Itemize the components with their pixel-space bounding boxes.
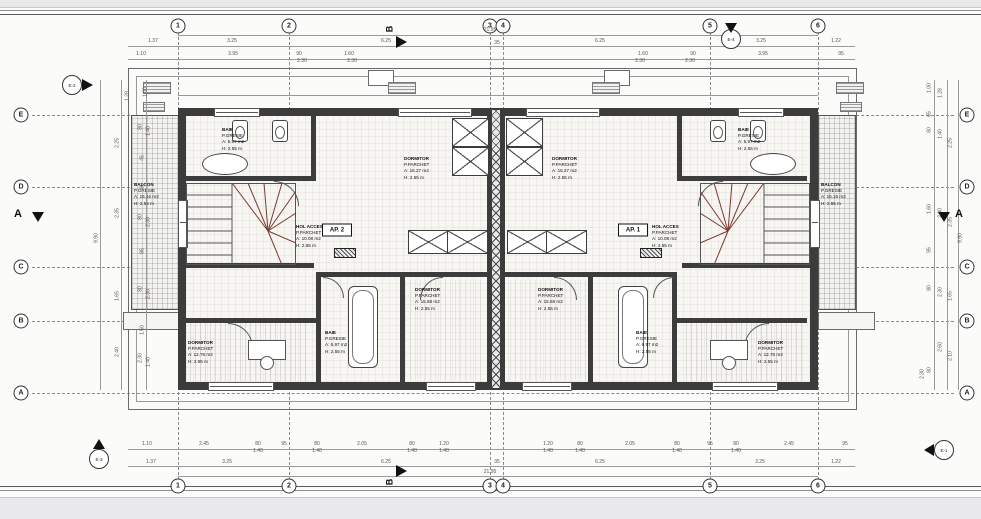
dimension-label: 2.05 xyxy=(625,442,635,447)
grid-bubble-top: 1 xyxy=(171,19,186,34)
partition-bedroom-left xyxy=(186,318,321,323)
room-height: H: 2.55 m xyxy=(821,201,846,207)
dim-rail xyxy=(128,449,855,450)
dimension-label: 2.10 xyxy=(949,351,954,361)
entry-canopy-right xyxy=(818,312,875,330)
room-area: A: 15.16 m2 xyxy=(821,194,846,200)
toilet-left-2 xyxy=(272,120,288,142)
note-tag xyxy=(836,82,864,94)
room-area: A: 5.97 m2 xyxy=(738,139,760,145)
window-bottom-center-left xyxy=(426,382,476,391)
dimension-label: 2.35 xyxy=(116,208,121,218)
room-area: A: 12.76 m2 xyxy=(758,352,783,358)
dimension-label: 80 xyxy=(928,367,933,373)
note-tag xyxy=(592,82,620,94)
dimension-label: 2.30 xyxy=(635,59,645,64)
grid-bubble-right: A xyxy=(960,386,975,401)
grid-bubble-left: C xyxy=(14,260,29,275)
dimension-label: 2.45 xyxy=(199,442,209,447)
room-label: BAIE P.GRESIE A: 6.97 m2 H: 2.55 m xyxy=(325,330,347,355)
room-label: BALCON P.GRESIE A: 15.16 m2 H: 2.55 m xyxy=(821,182,846,207)
dimension-label: 95 xyxy=(928,247,933,253)
room-area: A: 5.97 m2 xyxy=(222,139,244,145)
window-top-right-unit xyxy=(526,108,600,117)
dimension-label: 1.65 xyxy=(949,291,954,301)
room-height: H: 2.55 m xyxy=(188,359,213,365)
room-height: H: 2.55 m xyxy=(552,175,577,181)
dim-rail xyxy=(100,80,101,390)
room-height: H: 2.55 m xyxy=(538,306,563,312)
dim-rail xyxy=(178,476,818,477)
closet-x-top-left1 xyxy=(452,118,489,147)
room-label: DORMITOR P.PARCHET A: 12.76 m2 H: 2.55 m xyxy=(188,340,213,365)
parapet-line xyxy=(178,95,818,96)
tub-oval-left xyxy=(202,153,248,175)
dimension-label: 80 xyxy=(139,124,144,130)
dimension-label: 80 xyxy=(577,442,583,447)
dimension-label: 2.05 xyxy=(357,442,367,447)
room-label: BAIE P.GRESIE A: 6.97 m2 H: 2.55 m xyxy=(636,330,658,355)
dimension-label: 1.40 xyxy=(543,449,553,454)
room-area: A: 10.08 m2 xyxy=(652,236,679,242)
dimension-label: 95 xyxy=(281,442,287,447)
dimension-label: 95 xyxy=(141,248,146,254)
grid-bubble-bottom: 5 xyxy=(703,479,718,494)
apartment-tag: AP. 2 xyxy=(322,224,352,237)
dimension-label: 1.40 xyxy=(312,449,322,454)
room-height: H: 2.55 m xyxy=(415,306,440,312)
room-label: DORMITOR P.PARCHET A: 16.27 m2 H: 2.55 m xyxy=(404,156,429,181)
dimension-label: 2.30 xyxy=(147,289,152,299)
dimension-label: 9.90 xyxy=(959,233,964,243)
dim-rail xyxy=(934,80,935,390)
dimension-label: 1.00 xyxy=(928,83,933,93)
balcony-door-right xyxy=(810,200,820,248)
window-top-left-unit xyxy=(398,108,472,117)
room-label: HOL ACCES P.PARCHET A: 10.08 m2 H: 2.55 … xyxy=(652,224,679,249)
dimension-label: 1.40 xyxy=(731,449,741,454)
tub-oval-right xyxy=(750,153,796,175)
dimension-label: 1.60 xyxy=(638,52,648,57)
grid-bubble-right: D xyxy=(960,180,975,195)
room-label: DORMITOR P.PARCHET A: 15.68 m2 H: 2.55 m xyxy=(538,287,563,312)
level-marker-left xyxy=(334,248,356,258)
room-label: DORMITOR P.PARCHET A: 16.27 m2 H: 2.55 m xyxy=(552,156,577,181)
partition-bath-side-right xyxy=(677,113,682,181)
dimension-label: 3.25 xyxy=(222,460,232,465)
dimension-label: 2.40 xyxy=(116,347,121,357)
entry-canopy-left xyxy=(123,312,180,330)
dimension-label: 2.25 xyxy=(949,138,954,148)
dimension-label: 1.50 xyxy=(141,325,146,335)
party-wall-right-leaf xyxy=(500,108,505,390)
chair-left xyxy=(260,356,274,370)
elevation-mark-arrow xyxy=(924,444,934,456)
grid-bubble-right: C xyxy=(960,260,975,275)
closet-x-mid-left1 xyxy=(408,230,449,254)
room-area: A: 16.27 m2 xyxy=(404,168,429,174)
dimension-label: 80 xyxy=(139,214,144,220)
balcony-right xyxy=(818,115,856,310)
grid-bubble-top: 4 xyxy=(496,19,511,34)
room-height: H: 2.55 m xyxy=(222,146,244,152)
room-label: DORMITOR P.PARCHET A: 15.68 m2 H: 2.55 m xyxy=(415,287,440,312)
closet-x-mid-right2 xyxy=(546,230,587,254)
dimension-label: 6.25 xyxy=(381,460,391,465)
dimension-label: 2.30 xyxy=(685,59,695,64)
room-height: H: 2.55 m xyxy=(296,243,323,249)
dimension-label: 90 xyxy=(690,52,696,57)
floor-plan-sheet: 1 1 2 2 3 3 4 4 5 xyxy=(0,0,981,519)
dimension-label: 1.60 xyxy=(928,204,933,214)
section-letter-a-right: A xyxy=(955,208,963,220)
closet-x-top-right2 xyxy=(506,147,543,176)
dimension-label: 9.90 xyxy=(95,233,100,243)
level-marker-right xyxy=(640,248,662,258)
elevation-mark-arrow xyxy=(93,439,105,449)
closet-x-top-left2 xyxy=(452,147,489,176)
wall-left xyxy=(178,108,186,390)
section-letter-b-top: B xyxy=(384,26,394,33)
dimension-label: 80 xyxy=(928,127,933,133)
dimension-label: 95 xyxy=(141,183,146,189)
section-arrow-b-top xyxy=(396,36,407,48)
dimension-label: 35 xyxy=(494,41,500,46)
dimension-label: 1.28 xyxy=(939,88,944,98)
dimension-label: 45 xyxy=(141,155,146,161)
partition-bath-top-right xyxy=(677,176,807,181)
dimension-label: 1.20 xyxy=(543,442,553,447)
room-height: H: 2.55 m xyxy=(325,349,347,355)
sheet-frame-line-top-outer xyxy=(0,10,981,11)
dimension-label: 80 xyxy=(733,442,739,447)
closet-x-mid-left2 xyxy=(447,230,488,254)
dimension-label: 2.30 xyxy=(297,59,307,64)
lintel-tag-right xyxy=(840,102,862,112)
dimension-label: 1.28 xyxy=(126,91,131,101)
grid-bubble-bottom: 4 xyxy=(496,479,511,494)
dimension-label: 3.95 xyxy=(758,52,768,57)
dimension-label: 80 xyxy=(928,285,933,291)
dimension-label: 80 xyxy=(255,442,261,447)
partition-center-bedroom-right xyxy=(505,272,672,277)
dimension-label: 1.40 xyxy=(439,449,449,454)
dimension-label: 1.60 xyxy=(344,52,354,57)
dimension-label: 1.40 xyxy=(407,449,417,454)
grid-bubble-bottom: 1 xyxy=(171,479,186,494)
room-area: A: 6.97 m2 xyxy=(325,342,347,348)
room-height: H: 2.55 m xyxy=(738,146,760,152)
dimension-label: 2.25 xyxy=(116,138,121,148)
window-bath-right xyxy=(738,108,784,117)
dimension-label: 80 xyxy=(139,286,144,292)
dimension-label: 1.00 xyxy=(144,87,149,97)
dimension-label: 1.65 xyxy=(116,291,121,301)
room-height: H: 2.55 m xyxy=(636,349,658,355)
grid-bubble-top: 6 xyxy=(811,19,826,34)
grid-bubble-left: B xyxy=(14,314,29,329)
dimension-label: 95 xyxy=(838,52,844,57)
closet-x-mid-right1 xyxy=(507,230,548,254)
dimension-label: 95 xyxy=(842,442,848,447)
partition-center-bedroom-left xyxy=(321,272,487,277)
partition-bath-side-left xyxy=(311,113,316,181)
dimension-label: 35 xyxy=(494,460,500,465)
dimension-label: 3.25 xyxy=(227,39,237,44)
dimension-label: 90 xyxy=(296,52,302,57)
section-arrow-a-left xyxy=(32,212,44,222)
apartment-tag: AP. 1 xyxy=(618,224,648,237)
elevation-mark-arrow xyxy=(82,79,93,91)
dimension-label: 2.60 xyxy=(939,342,944,352)
dim-rail xyxy=(128,59,855,60)
dimension-label: 2.30 xyxy=(921,369,926,379)
balcony-left xyxy=(131,115,180,310)
room-height: H: 2.55 m xyxy=(652,243,679,249)
dim-rail xyxy=(128,466,855,467)
section-letter-a-left: A xyxy=(14,208,22,220)
toilet-right-1 xyxy=(710,120,726,142)
window-bottom-left xyxy=(208,382,274,391)
bathtub-bottom-left xyxy=(348,286,378,368)
dimension-label: 21.95 xyxy=(484,470,497,475)
room-area: A: 16.27 m2 xyxy=(552,168,577,174)
dimension-label: 1.40 xyxy=(939,129,944,139)
dimension-label: 1.37 xyxy=(146,460,156,465)
dim-rail xyxy=(947,80,948,390)
elevation-mark-circle: E-2 xyxy=(62,75,82,95)
dim-rail xyxy=(128,46,855,47)
dimension-label: 1.40 xyxy=(147,357,152,367)
grid-bubble-left: E xyxy=(14,108,29,123)
room-height: H: 2.55 m xyxy=(758,359,783,365)
dimension-label: 3.25 xyxy=(755,460,765,465)
dimension-label: 65 xyxy=(928,111,933,117)
room-label: DORMITOR P.PARCHET A: 12.76 m2 H: 2.55 m xyxy=(758,340,783,365)
dimension-label: 1.22 xyxy=(831,460,841,465)
dimension-label: 1.37 xyxy=(148,39,158,44)
elevation-mark-arrow xyxy=(725,23,737,33)
dimension-label: 80 xyxy=(409,442,415,447)
dimension-label: 95 xyxy=(707,442,713,447)
dimension-label: 2.30 xyxy=(139,353,144,363)
dimension-label: 80 xyxy=(674,442,680,447)
grid-bubble-bottom: 6 xyxy=(811,479,826,494)
dimension-label: 1.10 xyxy=(136,52,146,57)
partition-bath2-side1-left xyxy=(316,272,321,387)
dimension-label: 1.40 xyxy=(672,449,682,454)
grid-bubble-right: B xyxy=(960,314,975,329)
grid-bubble-top: 2 xyxy=(282,19,297,34)
section-arrow-b-bottom xyxy=(396,465,407,477)
partition-bedroom-right xyxy=(672,318,807,323)
grid-bubble-left: D xyxy=(14,180,29,195)
grid-bubble-right: E xyxy=(960,108,975,123)
bottom-chrome-bar xyxy=(0,497,981,519)
dimension-label: 3.95 xyxy=(228,52,238,57)
room-label: HOL ACCES P.PARCHET A: 10.08 m2 H: 2.55 … xyxy=(296,224,323,249)
dimension-label: 2.45 xyxy=(784,442,794,447)
elevation-mark-circle: E-1 xyxy=(934,440,954,460)
dimension-label: 1.20 xyxy=(439,442,449,447)
dim-rail xyxy=(121,80,122,390)
dimension-label: 6.25 xyxy=(381,39,391,44)
grid-bubble-left: A xyxy=(14,386,29,401)
dimension-label: 1.22 xyxy=(831,39,841,44)
dimension-label: 1.10 xyxy=(142,442,152,447)
bathtub-bottom-right xyxy=(618,286,648,368)
party-wall-core xyxy=(492,110,500,388)
dimension-label: 1.40 xyxy=(575,449,585,454)
note-tag xyxy=(388,82,416,94)
window-bath-left xyxy=(214,108,260,117)
section-arrow-a-right xyxy=(938,212,950,222)
dimension-label: 1.40 xyxy=(253,449,263,454)
room-area: A: 6.97 m2 xyxy=(636,342,658,348)
partition-bath-top-left xyxy=(186,176,316,181)
sheet-frame-line-top-inner xyxy=(0,14,981,15)
grid-bubble-top: 5 xyxy=(703,19,718,34)
grid-bubble-bottom: 2 xyxy=(282,479,297,494)
chair-right xyxy=(722,356,736,370)
room-area: A: 12.76 m2 xyxy=(188,352,213,358)
window-bottom-center-right xyxy=(522,382,572,391)
dimension-label: 80 xyxy=(314,442,320,447)
dimension-label: 6.25 xyxy=(595,39,605,44)
dimension-label: 3.25 xyxy=(756,39,766,44)
partition-bath2-side2-right xyxy=(588,272,593,387)
dimension-label: 1.40 xyxy=(147,126,152,136)
room-area: A: 15.68 m2 xyxy=(538,299,563,305)
room-area: A: 15.68 m2 xyxy=(415,299,440,305)
top-chrome-bar xyxy=(0,0,981,8)
room-label: BAIE P.GRESIE A: 5.97 m2 H: 2.55 m xyxy=(222,127,244,152)
room-area: A: 10.08 m2 xyxy=(296,236,323,242)
dimension-label: 21.95 xyxy=(484,28,497,33)
window-bottom-right xyxy=(712,382,778,391)
wall-right xyxy=(810,108,818,390)
room-label: BAIE P.GRESIE A: 5.97 m2 H: 2.55 m xyxy=(738,127,760,152)
room-height: H: 2.55 m xyxy=(404,175,429,181)
dimension-label: 2.30 xyxy=(347,59,357,64)
dimension-label: 6.25 xyxy=(595,460,605,465)
closet-x-top-right1 xyxy=(506,118,543,147)
elevation-mark-circle: E-3 xyxy=(89,449,109,469)
dimension-label: 2.30 xyxy=(939,287,944,297)
dimension-label: 2.30 xyxy=(147,217,152,227)
section-letter-b-bottom: B xyxy=(384,479,394,486)
partition-bath2-side2-left xyxy=(400,272,405,387)
